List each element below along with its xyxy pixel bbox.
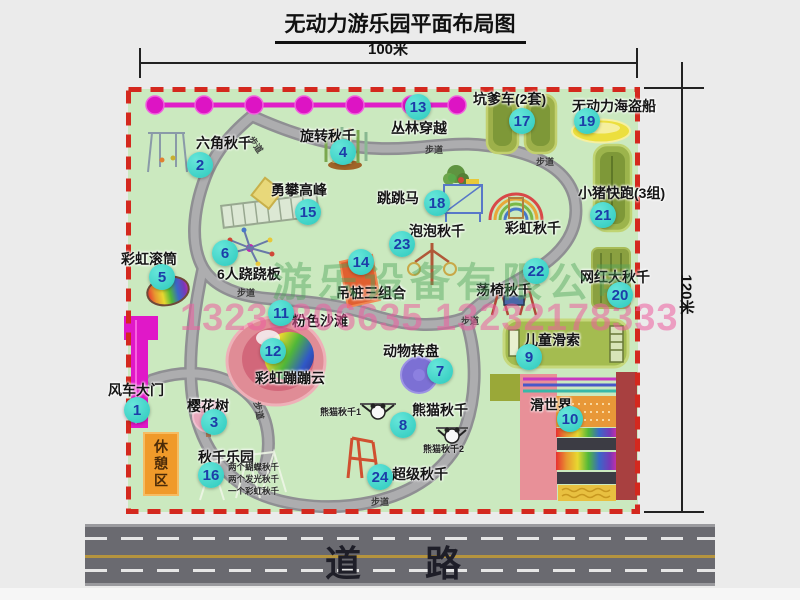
width-dimension-label: 100米: [358, 38, 418, 59]
footpath-label-2: 步道: [425, 143, 443, 156]
badge-16: 16: [198, 462, 224, 488]
label-jumping-horse: 跳跳马: [377, 188, 419, 208]
site-plan-image: 无动力游乐园平面布局图 100米 120米: [0, 0, 800, 600]
bottom-margin: [0, 588, 800, 600]
badge-14: 14: [348, 249, 374, 275]
label-rainbow-cloud: 彩虹蹦蹦云: [255, 368, 325, 388]
panda-swing-1-label: 熊猫秋千1: [320, 405, 361, 418]
badge-2: 2: [187, 152, 213, 178]
badge-6: 6: [212, 240, 238, 266]
badge-15: 15: [295, 199, 321, 225]
badge-5: 5: [149, 264, 175, 290]
badge-8: 8: [390, 412, 416, 438]
badge-9: 9: [516, 344, 542, 370]
badge-23: 23: [389, 231, 415, 257]
label-climbing-peak: 勇攀高峰: [271, 180, 327, 200]
swing-park-note-3: 一个彩虹秋千: [228, 485, 279, 497]
badge-4: 4: [330, 139, 356, 165]
label-hexagon-swing: 六角秋千: [196, 133, 252, 153]
label-jungle-crossing: 丛林穿越: [391, 118, 447, 138]
badge-7: 7: [427, 358, 453, 384]
swing-park-note-2: 两个发光秋千: [228, 473, 279, 485]
footpath-label-3: 步道: [536, 155, 554, 168]
rest-area-box: 休憩区: [143, 432, 179, 496]
badge-1: 1: [124, 397, 150, 423]
swing-park-note-1: 两个蝴蝶秋千: [228, 461, 279, 473]
badge-10: 10: [557, 406, 583, 432]
label-animal-turntable: 动物转盘: [383, 341, 439, 361]
label-pig-run: 小猪快跑(3组): [578, 183, 665, 203]
rest-area-label: 休憩区: [151, 439, 171, 490]
badge-22: 22: [523, 258, 549, 284]
badge-13: 13: [405, 94, 431, 120]
badge-24: 24: [367, 464, 393, 490]
road-label: 道 路: [85, 535, 715, 587]
road: 道 路: [85, 524, 715, 586]
watermark-phone: 13233806635 13232178333: [180, 297, 679, 340]
badge-3: 3: [201, 409, 227, 435]
swing-park-notes: 两个蝴蝶秋千 两个发光秋千 一个彩虹秋千: [228, 461, 279, 497]
label-super-swing: 超级秋千: [392, 464, 448, 484]
badge-17: 17: [509, 108, 535, 134]
label-rainbow-swing: 彩虹秋千: [505, 218, 561, 238]
badge-20: 20: [607, 282, 633, 308]
height-dimension-label: 120米: [677, 272, 698, 318]
badge-11: 11: [268, 300, 294, 326]
badge-18: 18: [424, 190, 450, 216]
badge-21: 21: [590, 202, 616, 228]
badge-19: 19: [574, 108, 600, 134]
footpath-label-7: 步道: [371, 495, 389, 508]
panda-swing-2-label: 熊猫秋千2: [423, 442, 464, 455]
badge-12: 12: [260, 338, 286, 364]
label-bubble-swing: 泡泡秋千: [409, 221, 465, 241]
label-pit-car: 坑爹车(2套): [473, 89, 546, 109]
label-panda-swing: 熊猫秋千: [412, 400, 468, 420]
